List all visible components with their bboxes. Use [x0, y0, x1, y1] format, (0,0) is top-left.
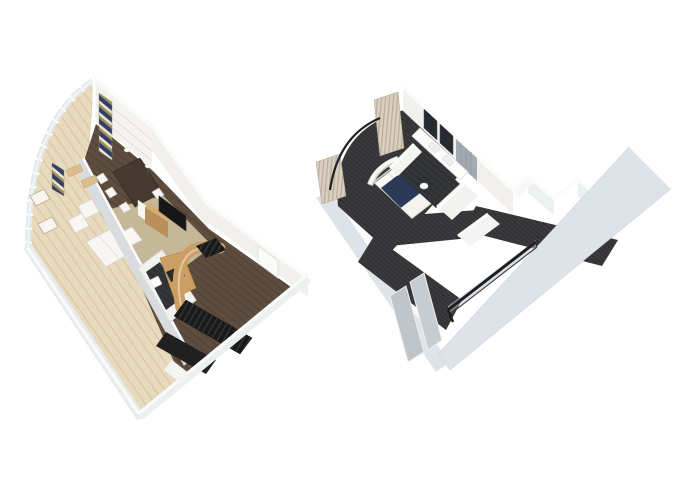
lower-level-floorplan [25, 78, 308, 418]
striped-curtain [99, 93, 112, 160]
floorplan-screenshot [0, 0, 680, 486]
floorplan-rendering [0, 0, 680, 486]
outer-right-wall [438, 146, 672, 370]
upper-level-floorplan [316, 86, 672, 372]
toilet [420, 183, 428, 189]
